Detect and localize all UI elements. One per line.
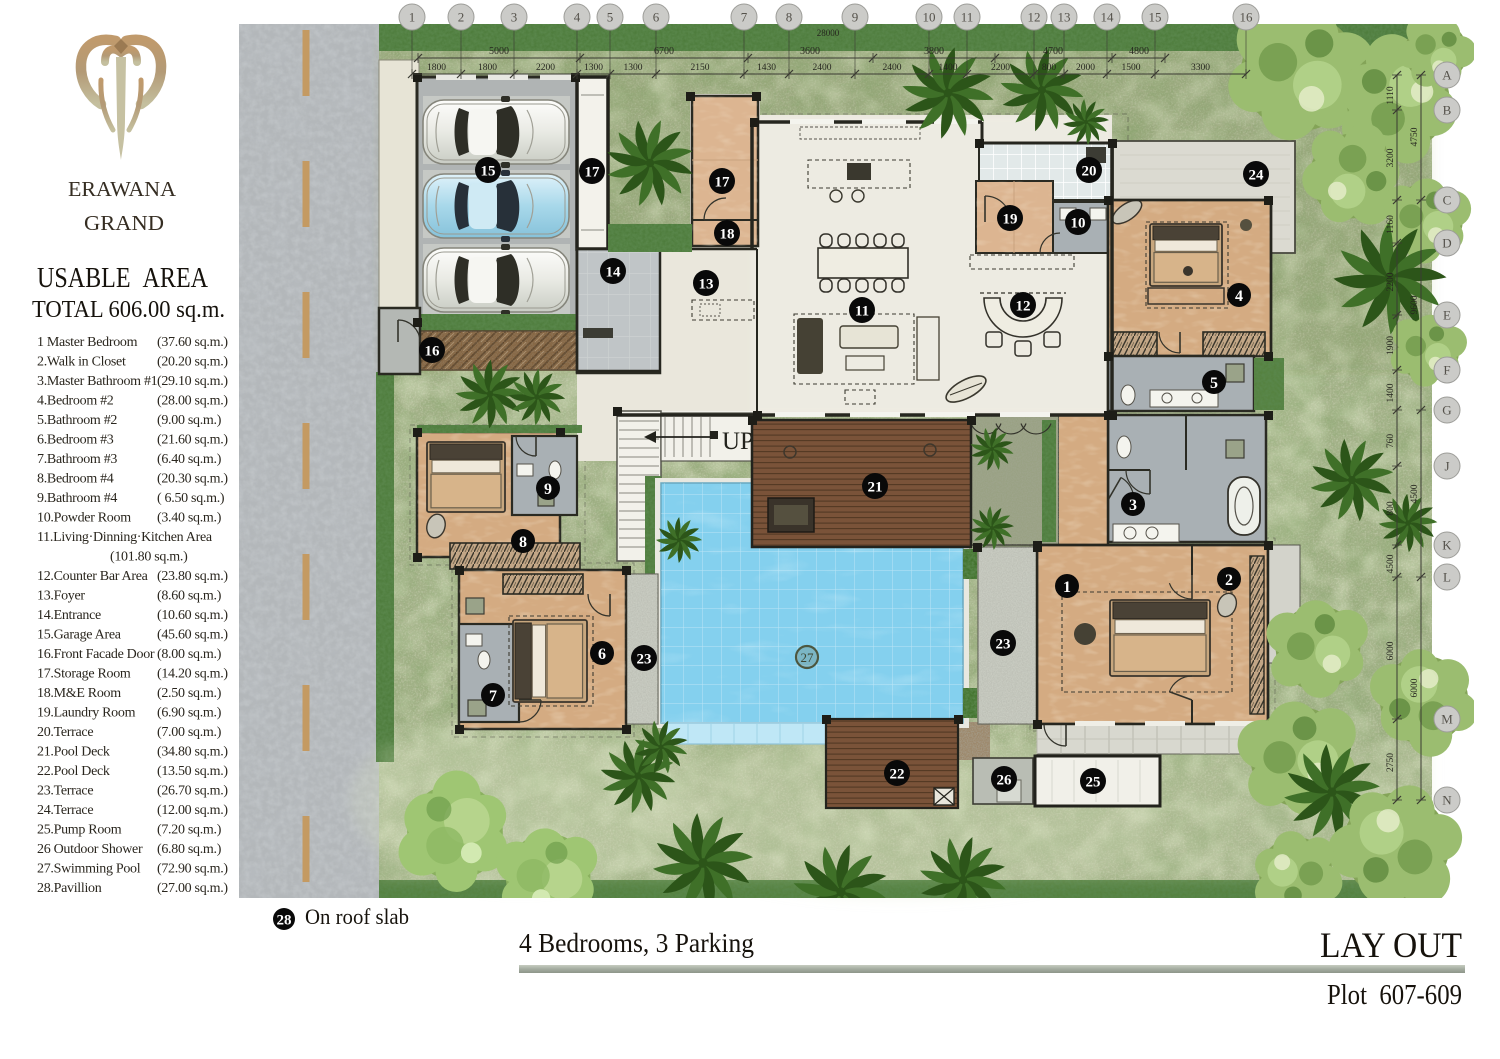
svg-text:5000: 5000: [489, 46, 509, 57]
svg-text:10.Powder Room: 10.Powder Room: [37, 511, 131, 526]
svg-text:800: 800: [1042, 63, 1057, 73]
svg-text:21.Pool Deck: 21.Pool Deck: [37, 745, 110, 760]
svg-text:F: F: [1443, 363, 1450, 378]
svg-text:3: 3: [1129, 497, 1137, 514]
svg-text:(29.10 sq.m.): (29.10 sq.m.): [157, 374, 228, 389]
svg-text:20: 20: [1082, 163, 1097, 179]
svg-text:4: 4: [574, 10, 581, 25]
svg-text:(3.40 sq.m.): (3.40 sq.m.): [157, 511, 222, 526]
svg-text:5: 5: [607, 10, 614, 25]
svg-text:4750: 4750: [1410, 127, 1420, 146]
svg-text:16: 16: [425, 343, 441, 359]
svg-text:19.Laundry Room: 19.Laundry Room: [37, 706, 136, 721]
svg-text:24: 24: [1249, 167, 1265, 183]
svg-text:6700: 6700: [654, 46, 674, 57]
svg-text:28: 28: [277, 912, 292, 928]
svg-text:1800: 1800: [478, 63, 497, 73]
svg-text:4500: 4500: [1386, 554, 1396, 573]
svg-text:2400: 2400: [883, 63, 902, 73]
svg-text:12: 12: [1028, 10, 1041, 25]
svg-text:2: 2: [1225, 572, 1233, 589]
svg-text:9600: 9600: [1410, 295, 1420, 314]
svg-text:(28.00 sq.m.): (28.00 sq.m.): [157, 394, 228, 409]
svg-text:(20.20 sq.m.): (20.20 sq.m.): [157, 355, 228, 370]
svg-text:1300: 1300: [624, 63, 643, 73]
svg-text:1300: 1300: [584, 63, 603, 73]
svg-text:7: 7: [741, 10, 748, 25]
svg-text:D: D: [1442, 236, 1451, 251]
svg-text:3.Master Bathroom #1: 3.Master Bathroom #1: [37, 374, 158, 389]
svg-text:7: 7: [489, 688, 497, 705]
svg-text:(6.40 sq.m.): (6.40 sq.m.): [157, 452, 222, 467]
svg-text:8: 8: [786, 10, 793, 25]
svg-text:3300: 3300: [1191, 63, 1210, 73]
svg-text:11: 11: [961, 10, 974, 25]
svg-text:(23.80 sq.m.): (23.80 sq.m.): [157, 569, 228, 584]
svg-text:3800: 3800: [924, 46, 944, 57]
svg-text:( 6.50 sq.m.): ( 6.50 sq.m.): [157, 491, 225, 506]
svg-text:1430: 1430: [757, 63, 776, 73]
svg-text:14: 14: [1101, 10, 1115, 25]
svg-text:(10.60 sq.m.): (10.60 sq.m.): [157, 608, 228, 623]
svg-text:6: 6: [598, 646, 606, 663]
svg-text:11.Living·Dinning·Kitchen Area: 11.Living·Dinning·Kitchen Area: [37, 530, 213, 545]
svg-text:(20.30 sq.m.): (20.30 sq.m.): [157, 472, 228, 487]
svg-text:3600: 3600: [800, 46, 820, 57]
svg-text:M: M: [1441, 712, 1453, 727]
svg-text:(6.80 sq.m.): (6.80 sq.m.): [157, 842, 222, 857]
svg-text:7.Bathroom #3: 7.Bathroom #3: [37, 452, 117, 467]
svg-text:ERAWANA: ERAWANA: [68, 177, 176, 201]
svg-text:4: 4: [1235, 288, 1243, 305]
svg-text:15: 15: [1149, 10, 1162, 25]
svg-text:2200: 2200: [991, 63, 1010, 73]
svg-text:5: 5: [1210, 375, 1218, 392]
svg-text:1400: 1400: [939, 63, 958, 73]
svg-text:6.Bedroom #3: 6.Bedroom #3: [37, 433, 114, 448]
svg-text:1500: 1500: [1122, 63, 1141, 73]
svg-text:14: 14: [606, 264, 622, 280]
svg-text:L: L: [1443, 570, 1451, 585]
svg-text:(21.60 sq.m.): (21.60 sq.m.): [157, 433, 228, 448]
svg-text:4500: 4500: [1410, 484, 1420, 503]
svg-text:22: 22: [890, 766, 905, 782]
svg-text:UP: UP: [722, 428, 754, 455]
svg-text:(7.00 sq.m.): (7.00 sq.m.): [157, 725, 222, 740]
svg-text:24.Terrace: 24.Terrace: [37, 803, 93, 818]
svg-text:1900: 1900: [1386, 336, 1396, 355]
svg-text:(9.00 sq.m.): (9.00 sq.m.): [157, 413, 222, 428]
svg-text:20.Terrace: 20.Terrace: [37, 725, 93, 740]
svg-text:6000: 6000: [1410, 678, 1420, 697]
svg-text:(26.70 sq.m.): (26.70 sq.m.): [157, 784, 228, 799]
svg-text:(12.00 sq.m.): (12.00 sq.m.): [157, 803, 228, 818]
svg-text:2200: 2200: [1386, 272, 1396, 291]
svg-text:(6.90 sq.m.): (6.90 sq.m.): [157, 706, 222, 721]
svg-text:1800: 1800: [427, 63, 446, 73]
svg-text:1110: 1110: [1386, 86, 1396, 105]
svg-text:23: 23: [996, 636, 1011, 652]
svg-text:26: 26: [997, 772, 1013, 788]
svg-text:1: 1: [1063, 579, 1071, 596]
svg-text:28000: 28000: [817, 28, 840, 38]
svg-text:1: 1: [409, 10, 416, 25]
svg-text:17.Storage Room: 17.Storage Room: [37, 667, 131, 682]
svg-text:3: 3: [511, 10, 518, 25]
svg-text:15: 15: [481, 163, 496, 179]
svg-text:6: 6: [653, 10, 660, 25]
svg-text:E: E: [1443, 308, 1451, 323]
svg-text:G: G: [1442, 403, 1451, 418]
svg-text:J: J: [1444, 459, 1449, 474]
svg-text:On roof slab: On roof slab: [305, 904, 409, 929]
svg-text:(8.00 sq.m.): (8.00 sq.m.): [157, 647, 222, 662]
svg-text:27.Swimming Pool: 27.Swimming Pool: [37, 862, 141, 877]
svg-text:2: 2: [458, 10, 465, 25]
svg-text:28.Pavillion: 28.Pavillion: [37, 881, 102, 896]
svg-text:2.Walk in Closet: 2.Walk in Closet: [37, 355, 126, 370]
svg-text:13: 13: [1058, 10, 1071, 25]
svg-text:11: 11: [855, 303, 869, 319]
svg-text:3200: 3200: [1386, 148, 1396, 167]
svg-text:TOTAL 606.00 sq.m.: TOTAL 606.00 sq.m.: [32, 297, 225, 323]
svg-text:(7.20 sq.m.): (7.20 sq.m.): [157, 823, 222, 838]
svg-text:12: 12: [1016, 298, 1031, 314]
svg-text:LAY OUT: LAY OUT: [1320, 925, 1462, 965]
svg-text:5.Bathroom #2: 5.Bathroom #2: [37, 413, 117, 428]
svg-text:16: 16: [1240, 10, 1254, 25]
svg-text:18.M&E Room: 18.M&E Room: [37, 686, 121, 701]
svg-text:9: 9: [852, 10, 859, 25]
svg-text:K: K: [1442, 538, 1452, 553]
svg-text:15.Garage Area: 15.Garage Area: [37, 628, 122, 643]
svg-text:26 Outdoor Shower: 26 Outdoor Shower: [37, 842, 143, 857]
svg-text:Plot 607-609: Plot 607-609: [1327, 980, 1462, 1011]
svg-text:19: 19: [1003, 211, 1018, 227]
svg-text:10: 10: [923, 10, 936, 25]
svg-text:760: 760: [1386, 434, 1396, 449]
svg-text:6000: 6000: [1386, 641, 1396, 660]
svg-text:22.Pool Deck: 22.Pool Deck: [37, 764, 110, 779]
svg-text:B: B: [1443, 103, 1452, 118]
svg-text:2200: 2200: [536, 63, 555, 73]
svg-text:9: 9: [544, 481, 552, 498]
svg-text:4 Bedrooms, 3 Parking: 4 Bedrooms, 3 Parking: [519, 928, 754, 958]
svg-text:(14.20 sq.m.): (14.20 sq.m.): [157, 667, 228, 682]
svg-text:16.Front Facade Door: 16.Front Facade Door: [37, 647, 155, 662]
svg-text:27: 27: [801, 650, 815, 665]
svg-text:17: 17: [715, 174, 731, 190]
svg-text:1400: 1400: [1386, 383, 1396, 402]
svg-text:A: A: [1442, 68, 1452, 83]
svg-text:1 Master Bedroom: 1 Master Bedroom: [37, 335, 138, 350]
svg-text:8: 8: [519, 534, 527, 551]
svg-text:2750: 2750: [1386, 753, 1396, 772]
svg-text:17: 17: [585, 164, 601, 180]
svg-text:23.Terrace: 23.Terrace: [37, 784, 93, 799]
svg-text:8.Bedroom #4: 8.Bedroom #4: [37, 472, 114, 487]
svg-text:2150: 2150: [691, 63, 710, 73]
svg-text:C: C: [1443, 193, 1452, 208]
svg-text:GRAND: GRAND: [84, 211, 164, 235]
svg-text:4.Bedroom #2: 4.Bedroom #2: [37, 394, 114, 409]
svg-text:9.Bathroom #4: 9.Bathroom #4: [37, 491, 117, 506]
svg-text:25: 25: [1086, 774, 1101, 790]
svg-text:4800: 4800: [1129, 46, 1149, 57]
svg-text:(37.60 sq.m.): (37.60 sq.m.): [157, 335, 228, 350]
svg-text:18: 18: [720, 226, 735, 242]
svg-text:4700: 4700: [1043, 46, 1063, 57]
svg-text:(45.60 sq.m.): (45.60 sq.m.): [157, 628, 228, 643]
svg-text:(8.60 sq.m.): (8.60 sq.m.): [157, 589, 222, 604]
svg-text:(72.90 sq.m.): (72.90 sq.m.): [157, 862, 228, 877]
svg-text:(13.50 sq.m.): (13.50 sq.m.): [157, 764, 228, 779]
svg-text:13.Foyer: 13.Foyer: [37, 589, 85, 604]
svg-text:10: 10: [1071, 215, 1086, 231]
svg-text:1160: 1160: [1386, 215, 1396, 234]
svg-text:2000: 2000: [1076, 63, 1095, 73]
svg-text:(101.80 sq.m.): (101.80 sq.m.): [110, 550, 188, 565]
svg-text:21: 21: [868, 479, 883, 495]
svg-text:N: N: [1442, 793, 1452, 808]
svg-text:(27.00 sq.m.): (27.00 sq.m.): [157, 881, 228, 896]
svg-text:(34.80 sq.m.): (34.80 sq.m.): [157, 745, 228, 760]
svg-text:800: 800: [1386, 501, 1396, 516]
svg-text:25.Pump Room: 25.Pump Room: [37, 823, 122, 838]
svg-text:13: 13: [699, 276, 714, 292]
svg-text:14.Entrance: 14.Entrance: [37, 608, 101, 623]
svg-text:USABLE AREA: USABLE AREA: [37, 263, 209, 294]
svg-text:(2.50 sq.m.): (2.50 sq.m.): [157, 686, 222, 701]
svg-text:12.Counter Bar Area: 12.Counter Bar Area: [37, 569, 149, 584]
svg-text:23: 23: [637, 651, 652, 667]
svg-text:2400: 2400: [813, 63, 832, 73]
